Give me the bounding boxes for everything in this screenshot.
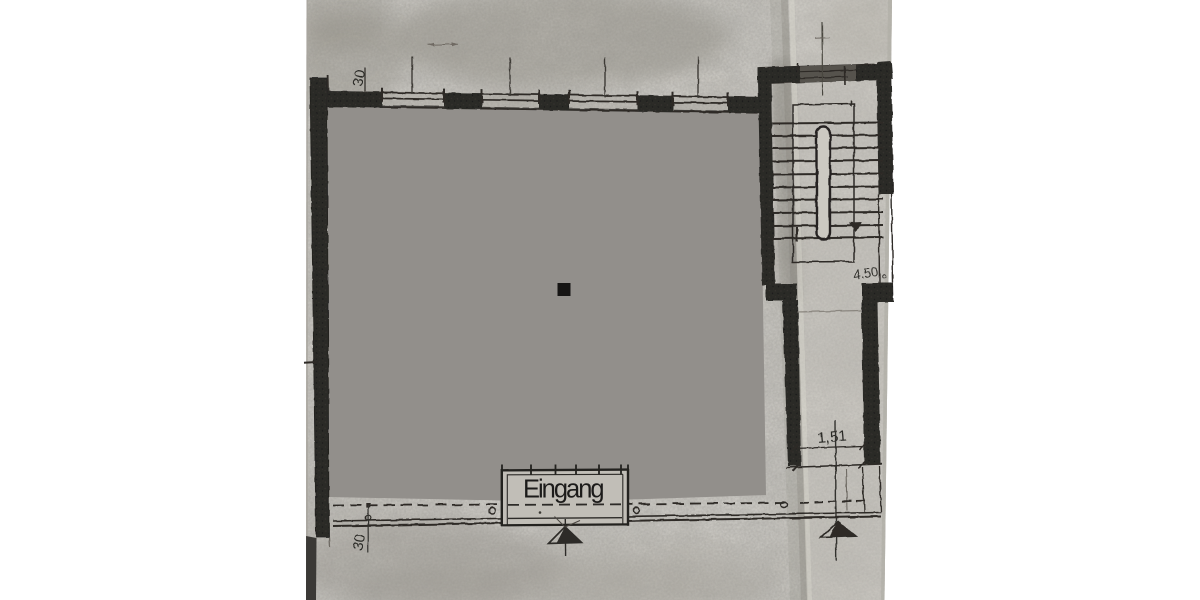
svg-text:1,51: 1,51: [817, 428, 848, 447]
svg-text:Eingang: Eingang: [523, 476, 603, 504]
svg-text:30: 30: [350, 69, 369, 88]
svg-text:30: 30: [350, 533, 369, 552]
